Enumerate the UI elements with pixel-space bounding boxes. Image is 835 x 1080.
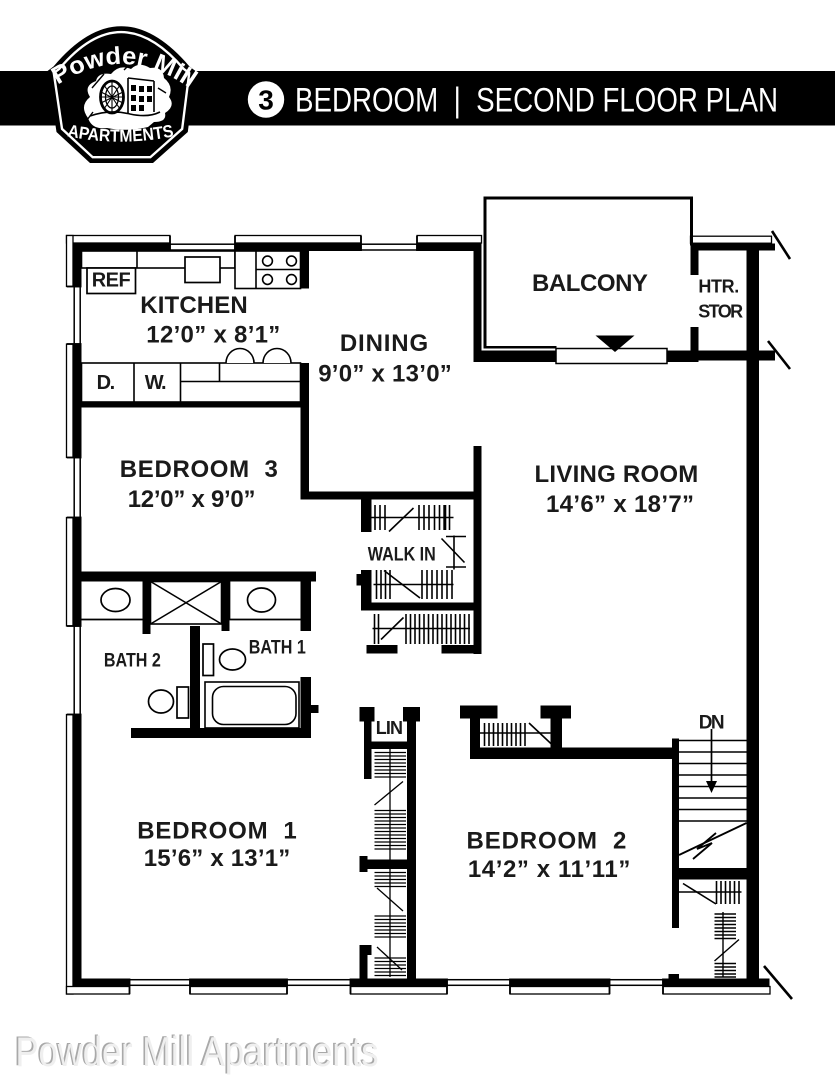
svg-text:KITCHEN: KITCHEN bbox=[140, 292, 248, 319]
svg-text:HTR.: HTR. bbox=[698, 277, 739, 297]
svg-text:REF: REF bbox=[92, 270, 131, 292]
svg-text:W.: W. bbox=[145, 372, 167, 394]
svg-text:14’2” x 11’11”: 14’2” x 11’11” bbox=[468, 856, 631, 883]
svg-text:12’0” x 8’1”: 12’0” x 8’1” bbox=[146, 322, 280, 349]
svg-text:9’0” x 13’0”: 9’0” x 13’0” bbox=[318, 361, 452, 388]
svg-text:WALK IN: WALK IN bbox=[368, 545, 436, 566]
svg-text:BATH 2: BATH 2 bbox=[104, 651, 161, 672]
svg-text:BEDROOM 1: BEDROOM 1 bbox=[137, 818, 297, 845]
svg-text:BEDROOM 3: BEDROOM 3 bbox=[120, 456, 278, 483]
svg-text:STOR: STOR bbox=[698, 302, 743, 322]
svg-text:LIVING ROOM: LIVING ROOM bbox=[535, 461, 699, 488]
svg-text:BEDROOM 2: BEDROOM 2 bbox=[467, 828, 627, 855]
svg-text:BATH 1: BATH 1 bbox=[249, 638, 306, 659]
svg-text:LIN: LIN bbox=[376, 718, 403, 738]
svg-text:BEDROOM | SECOND FLOOR PLAN: BEDROOM | SECOND FLOOR PLAN bbox=[295, 82, 778, 120]
svg-text:DINING: DINING bbox=[340, 330, 428, 357]
svg-text:3: 3 bbox=[258, 85, 274, 116]
svg-text:15’6” x 13’1”: 15’6” x 13’1” bbox=[144, 845, 291, 872]
svg-text:DN: DN bbox=[699, 713, 725, 734]
svg-text:12’0” x 9’0”: 12’0” x 9’0” bbox=[128, 486, 256, 513]
svg-text:14’6” x 18’7”: 14’6” x 18’7” bbox=[546, 491, 694, 518]
svg-text:D.: D. bbox=[97, 372, 116, 394]
svg-text:BALCONY: BALCONY bbox=[532, 270, 648, 297]
svg-text:Powder Mill Apartments: Powder Mill Apartments bbox=[16, 1028, 379, 1075]
